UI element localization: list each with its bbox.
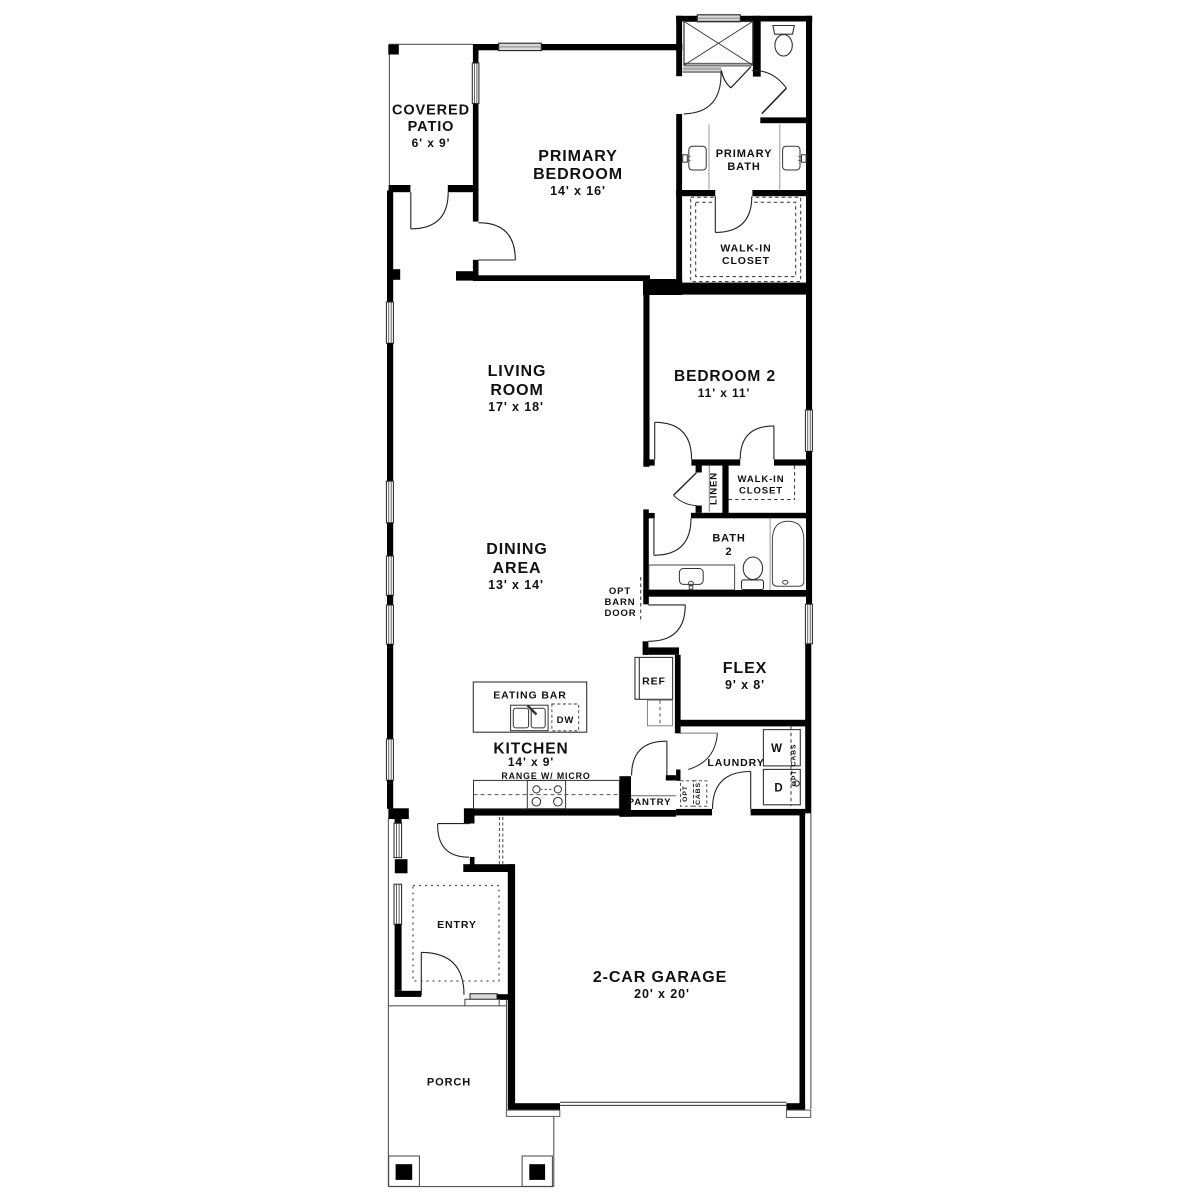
- svg-text:OPT: OPT: [682, 785, 689, 802]
- svg-text:CABS: CABS: [790, 744, 797, 767]
- svg-text:OPT: OPT: [609, 586, 631, 597]
- svg-text:EATING BAR: EATING BAR: [493, 690, 567, 702]
- svg-text:D: D: [774, 783, 783, 795]
- svg-text:WALK-IN: WALK-IN: [720, 243, 771, 255]
- svg-text:DINING: DINING: [486, 541, 547, 558]
- svg-text:COVERED: COVERED: [392, 103, 470, 119]
- svg-text:BARN: BARN: [604, 597, 635, 608]
- svg-text:17' x 18': 17' x 18': [488, 400, 544, 414]
- svg-text:DW: DW: [557, 715, 575, 726]
- svg-text:CABS: CABS: [695, 782, 702, 805]
- svg-text:2: 2: [725, 546, 732, 558]
- svg-text:RANGE W/ MICRO: RANGE W/ MICRO: [501, 771, 590, 781]
- svg-text:11' x 11': 11' x 11': [698, 386, 751, 400]
- svg-text:PATIO: PATIO: [408, 119, 455, 135]
- svg-text:ENTRY: ENTRY: [437, 919, 477, 931]
- svg-text:PORCH: PORCH: [427, 1077, 471, 1089]
- svg-text:LINEN: LINEN: [709, 472, 720, 505]
- svg-text:LAUNDRY: LAUNDRY: [707, 757, 764, 769]
- svg-text:PANTRY: PANTRY: [628, 797, 672, 808]
- svg-text:BEDROOM 2: BEDROOM 2: [674, 368, 776, 385]
- svg-text:BEDROOM: BEDROOM: [533, 166, 623, 183]
- svg-text:BATH: BATH: [712, 533, 745, 545]
- svg-text:14' x 16': 14' x 16': [550, 184, 606, 198]
- svg-text:PRIMARY: PRIMARY: [538, 148, 618, 165]
- svg-text:AREA: AREA: [493, 560, 542, 577]
- svg-text:20' x 20': 20' x 20': [634, 987, 690, 1001]
- svg-text:FLEX: FLEX: [723, 660, 768, 677]
- svg-text:13' x 14': 13' x 14': [488, 578, 544, 592]
- svg-text:BATH: BATH: [727, 161, 760, 173]
- svg-text:WALK-IN: WALK-IN: [738, 474, 785, 485]
- svg-text:DOOR: DOOR: [604, 608, 636, 619]
- svg-text:6' x 9': 6' x 9': [412, 136, 451, 150]
- svg-text:CLOSET: CLOSET: [722, 255, 770, 267]
- svg-text:2-CAR GARAGE: 2-CAR GARAGE: [593, 969, 727, 986]
- svg-text:14' x 9': 14' x 9': [508, 755, 554, 769]
- svg-text:REF: REF: [642, 676, 666, 688]
- svg-text:PRIMARY: PRIMARY: [716, 148, 773, 160]
- svg-text:W: W: [771, 743, 783, 755]
- svg-text:OPT: OPT: [791, 770, 798, 787]
- svg-text:ROOM: ROOM: [490, 382, 543, 399]
- svg-text:LIVING: LIVING: [488, 363, 547, 380]
- svg-text:9' x 8': 9' x 8': [725, 678, 765, 692]
- svg-text:CLOSET: CLOSET: [739, 486, 783, 497]
